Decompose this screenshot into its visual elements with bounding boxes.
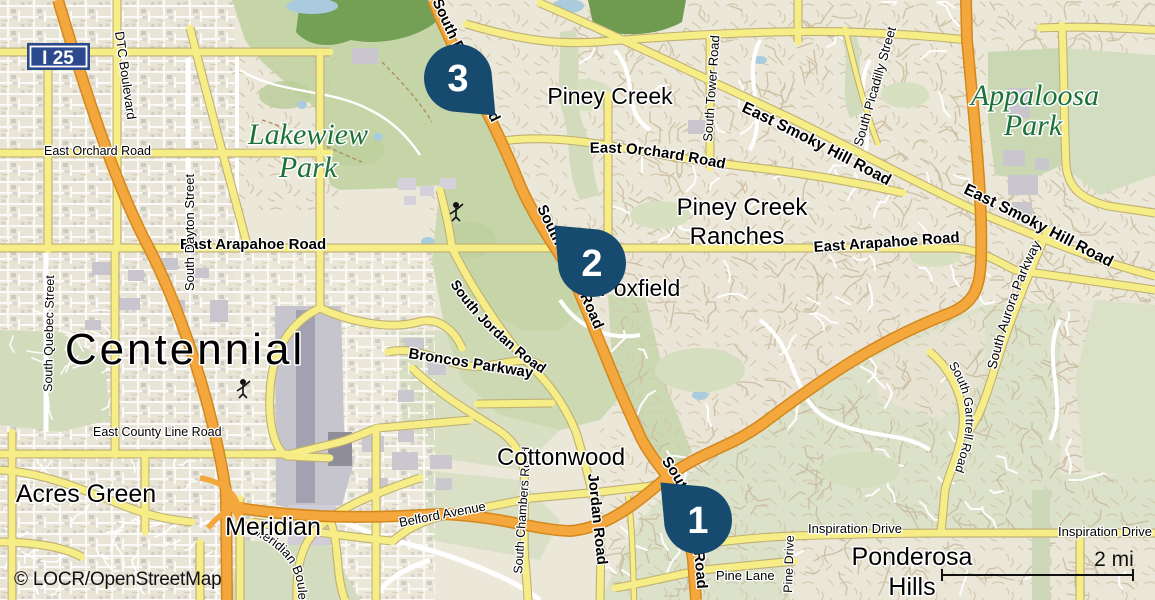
svg-text:East Arapahoe Road: East Arapahoe Road [180, 236, 326, 253]
svg-text:Park: Park [278, 151, 338, 184]
svg-text:East Orchard Road: East Orchard Road [44, 144, 151, 158]
svg-text:Pine Lane: Pine Lane [716, 568, 775, 583]
svg-text:2 mi: 2 mi [1094, 548, 1134, 571]
svg-text:Acres Green: Acres Green [16, 480, 156, 508]
svg-text:Ranches: Ranches [690, 223, 785, 250]
svg-text:Cottonwood: Cottonwood [497, 444, 625, 471]
svg-text:Hills: Hills [888, 573, 935, 600]
svg-text:1: 1 [687, 500, 708, 542]
svg-text:3: 3 [447, 58, 468, 100]
svg-text:Lakewiew: Lakewiew [247, 118, 368, 151]
svg-text:Pine Drive: Pine Drive [781, 535, 797, 593]
svg-text:Piney Creek: Piney Creek [677, 194, 809, 221]
svg-text:Piney Creek: Piney Creek [547, 83, 673, 109]
svg-text:Appaloosa: Appaloosa [969, 79, 1099, 112]
svg-text:Park: Park [1003, 109, 1063, 142]
svg-text:East County Line Road: East County Line Road [93, 425, 222, 439]
svg-text:I 25: I 25 [42, 48, 74, 69]
svg-text:Ponderosa: Ponderosa [852, 543, 973, 571]
svg-text:South Dayton Street: South Dayton Street [182, 174, 197, 291]
svg-text:South Quebec Street: South Quebec Street [41, 275, 57, 392]
svg-text:Meridian: Meridian [225, 513, 321, 541]
svg-text:Inspiration Drive: Inspiration Drive [1058, 524, 1152, 539]
svg-text:Inspiration Drive: Inspiration Drive [808, 521, 902, 536]
svg-text:Centennial: Centennial [65, 325, 305, 374]
svg-text:© LOCR/OpenStreetMap: © LOCR/OpenStreetMap [14, 569, 221, 590]
svg-text:2: 2 [581, 243, 602, 285]
